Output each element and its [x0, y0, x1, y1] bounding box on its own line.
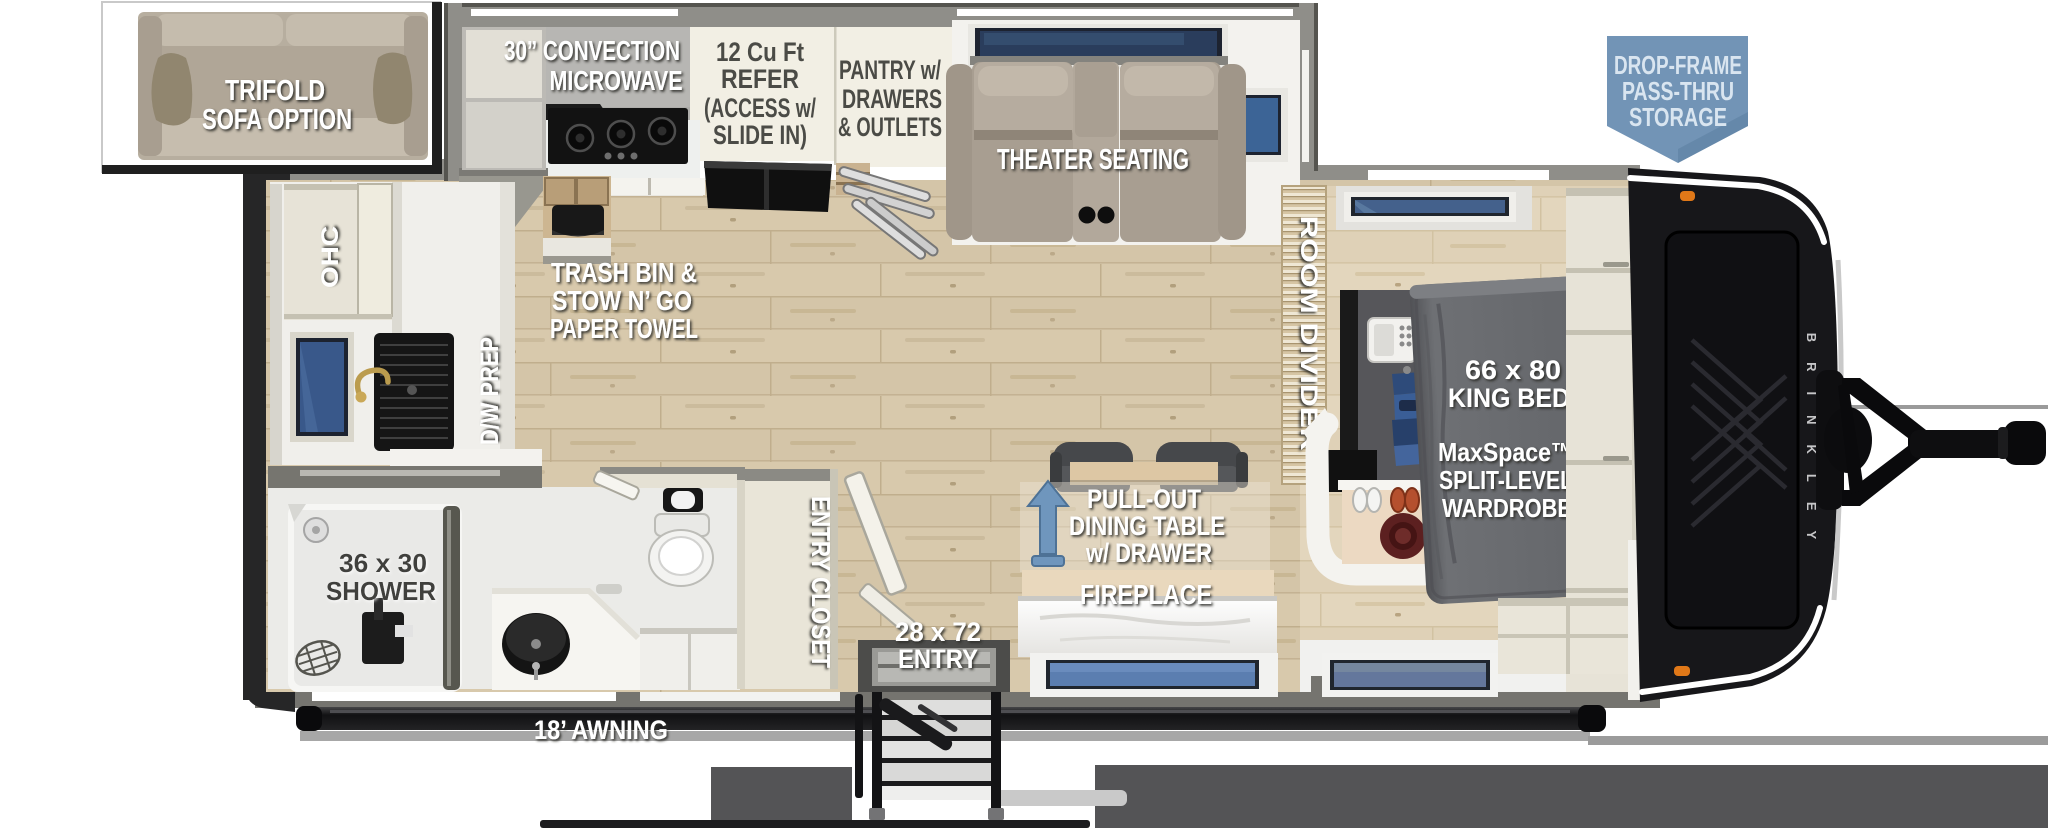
svg-text:MICROWAVE: MICROWAVE: [550, 65, 683, 96]
svg-text:SOFA OPTION: SOFA OPTION: [202, 104, 352, 136]
svg-text:SHOWER: SHOWER: [326, 576, 436, 606]
svg-text:SPLIT-LEVEL: SPLIT-LEVEL: [1439, 465, 1573, 495]
svg-text:12 Cu Ft: 12 Cu Ft: [716, 37, 804, 67]
svg-text:PAPER TOWEL: PAPER TOWEL: [550, 313, 698, 344]
svg-text:ENTRY: ENTRY: [898, 644, 978, 674]
svg-text:66 x 80: 66 x 80: [1465, 355, 1561, 385]
svg-text:36 x 30: 36 x 30: [339, 548, 427, 578]
svg-text:THEATER SEATING: THEATER SEATING: [997, 144, 1189, 176]
svg-text:TRASH BIN &: TRASH BIN &: [551, 257, 697, 288]
svg-text:30” CONVECTION: 30” CONVECTION: [504, 35, 680, 66]
svg-text:FIREPLACE: FIREPLACE: [1080, 579, 1212, 610]
svg-text:D/W PREP: D/W PREP: [476, 337, 504, 445]
svg-text:18’ AWNING: 18’ AWNING: [534, 715, 668, 745]
svg-text:TRIFOLD: TRIFOLD: [225, 75, 325, 107]
svg-text:ENTRY CLOSET: ENTRY CLOSET: [806, 496, 836, 668]
svg-text:PULL-OUT: PULL-OUT: [1087, 484, 1201, 514]
svg-text:WARDROBE: WARDROBE: [1442, 493, 1572, 523]
svg-text:STORAGE: STORAGE: [1629, 102, 1727, 132]
svg-text:STOW N’ GO: STOW N’ GO: [552, 285, 692, 316]
svg-text:SLIDE IN): SLIDE IN): [713, 120, 807, 150]
svg-text:PANTRY w/: PANTRY w/: [839, 55, 941, 85]
svg-text:28 x 72: 28 x 72: [895, 617, 981, 647]
svg-text:DRAWERS: DRAWERS: [842, 84, 942, 114]
svg-text:(ACCESS w/: (ACCESS w/: [704, 93, 816, 123]
svg-text:KING BED: KING BED: [1448, 383, 1570, 413]
svg-text:ROOM DIVIDER: ROOM DIVIDER: [1295, 216, 1322, 451]
svg-text:OHC: OHC: [317, 226, 344, 288]
svg-text:& OUTLETS: & OUTLETS: [838, 112, 942, 142]
svg-text:MaxSpace™: MaxSpace™: [1438, 437, 1574, 467]
svg-text:w/ DRAWER: w/ DRAWER: [1085, 538, 1212, 568]
svg-text:REFER: REFER: [721, 64, 799, 94]
svg-text:DINING TABLE: DINING TABLE: [1069, 511, 1225, 541]
